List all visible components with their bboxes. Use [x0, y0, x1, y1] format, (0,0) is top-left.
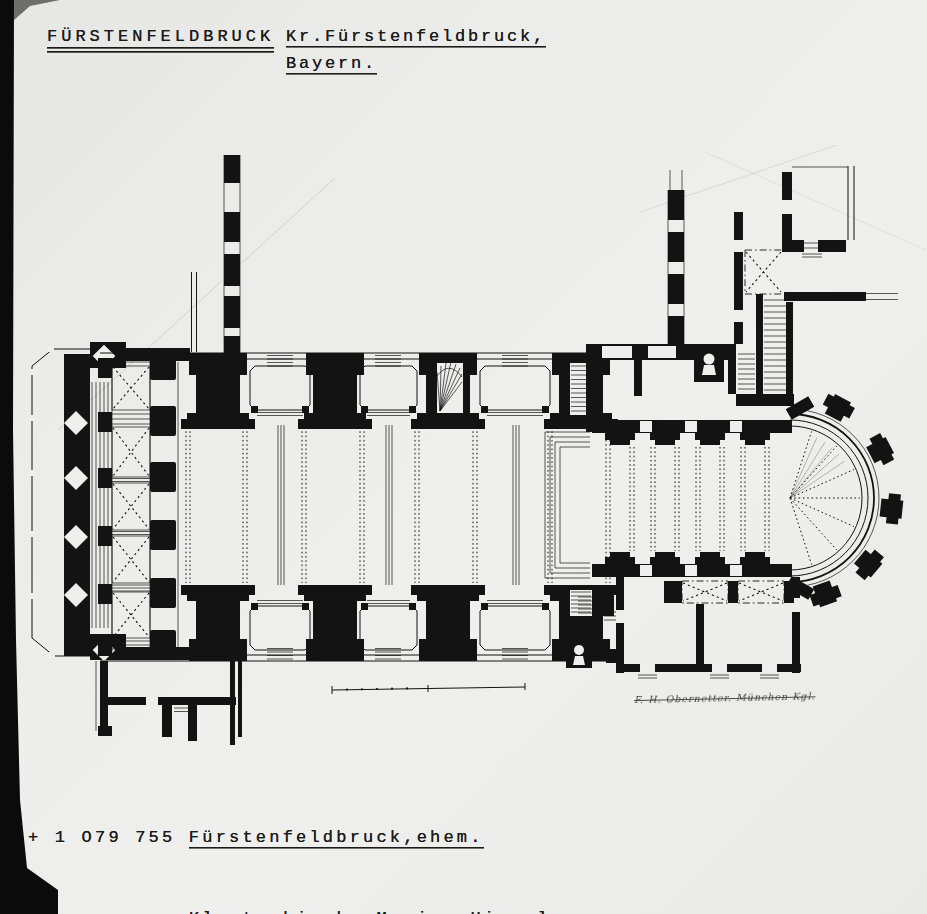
nave-arch-lines: [186, 425, 610, 585]
archive-photo-card: FÜRSTENFELDBRUCK Kr.Fürstenfeldbruck, Ba…: [0, 0, 927, 914]
organ-gallery: [98, 352, 178, 658]
apse-buttresses: [786, 391, 904, 609]
church-floor-plan: [0, 145, 927, 760]
nave-wall-pillars: [181, 353, 618, 661]
spiral-staircase: [437, 362, 463, 413]
choir-arch-lines: [630, 447, 769, 551]
caption-title-part1: Fürstenfeldbruck,ehem.: [189, 828, 484, 849]
annex-vault-bay: [745, 250, 786, 294]
choir: [592, 420, 792, 577]
south-font: [566, 640, 592, 668]
inventory-number: + 1 O79 755: [28, 828, 189, 847]
south-staircase: [570, 590, 592, 616]
gallery-arch-bands: [112, 359, 150, 649]
baluster-font: [694, 348, 724, 382]
apse: [786, 391, 904, 609]
scale-bar: [332, 683, 525, 694]
vault-diagonals: [113, 367, 149, 637]
annex-northwest-walls: [192, 155, 241, 353]
annex-southwest: [96, 661, 242, 745]
nave-walls: [100, 353, 616, 661]
caption-line-1: + 1 O79 755 Fürstenfeldbruck,ehem.: [28, 824, 564, 851]
region-line: Bayern.: [286, 54, 377, 75]
side-chapels-bottom: [250, 601, 550, 651]
apse-rib-lines: [790, 431, 860, 564]
caption-line-2: Klosterkirche Mariae Himmel-: [189, 905, 564, 914]
annex-staircases: [736, 294, 794, 406]
sacristy-annex: [586, 166, 898, 432]
place-title: FÜRSTENFELDBRUCK: [47, 27, 274, 53]
district-line: Kr.Fürstenfeldbruck,: [286, 27, 546, 48]
side-chapels-top: [250, 366, 550, 416]
photo-scratches: [58, 145, 926, 430]
chapel-window-reveals: [267, 356, 528, 660]
caption-block: + 1 O79 755 Fürstenfeldbruck,ehem. Klost…: [28, 770, 564, 914]
